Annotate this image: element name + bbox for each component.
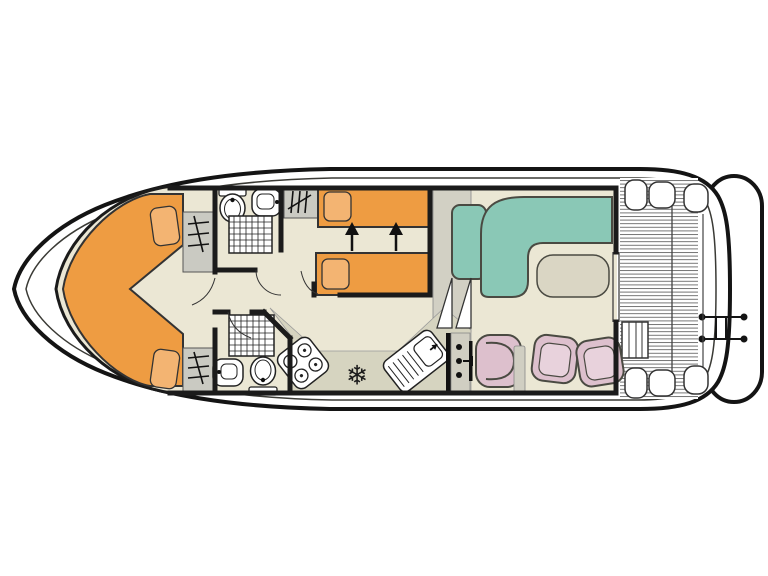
stern-corner-seat <box>684 366 708 394</box>
helm-seat-pedestal <box>469 341 473 381</box>
wardrobe-icon <box>183 212 213 272</box>
folding-table <box>514 346 525 394</box>
wardrobe-icon <box>284 187 318 218</box>
deck-cushion <box>625 368 647 398</box>
shower-icon <box>229 315 274 356</box>
toilet-icon <box>249 357 277 395</box>
deck-steps-icon <box>622 322 648 358</box>
helm-console-edge <box>446 333 451 393</box>
pillow <box>322 259 349 289</box>
shower-icon <box>229 216 272 253</box>
deck-cushion <box>649 370 675 396</box>
deck-cushion <box>649 182 675 208</box>
saloon-table <box>537 255 609 297</box>
pillow <box>149 205 180 246</box>
floor-plan-svg: ❄ <box>0 0 768 576</box>
dining-chair <box>530 333 579 384</box>
wardrobe-icon <box>183 348 213 393</box>
pillow <box>324 192 351 221</box>
stern-corner-seat <box>684 184 708 212</box>
deck-cushion <box>625 180 647 210</box>
boat-floor-plan: ❄ <box>0 0 768 576</box>
pillow <box>149 348 180 389</box>
rear-deck <box>620 178 708 399</box>
fridge-snowflake-icon: ❄ <box>346 361 369 392</box>
deck-slats <box>620 178 698 399</box>
helm-console-knobs-icon <box>456 344 462 378</box>
washbasin-icon <box>252 189 282 216</box>
